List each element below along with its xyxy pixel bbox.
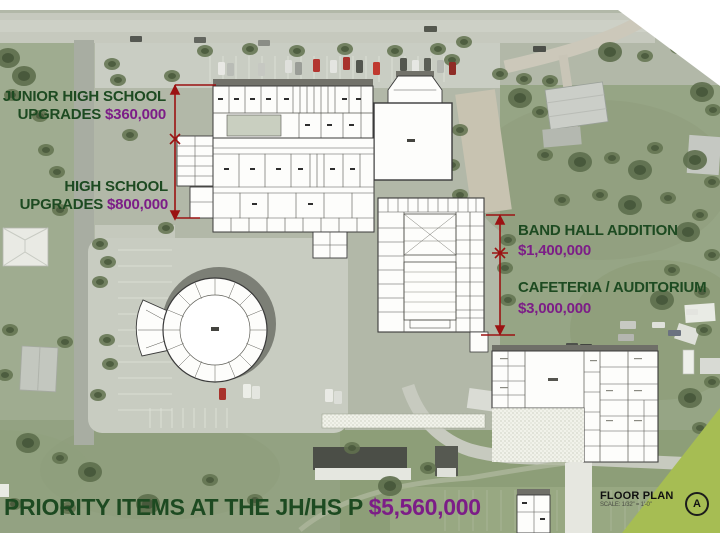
drawing-title: FLOOR PLAN <box>600 490 680 502</box>
label-line: UPGRADES $800,000 <box>0 196 168 214</box>
label-line: BAND HALL ADDITION <box>518 221 678 241</box>
site-plan-graphic <box>0 0 720 540</box>
amount-junior-high: $360,000 <box>105 106 166 123</box>
amount-band-hall: $1,400,000 <box>518 241 678 261</box>
label-cafeteria-auditorium: CAFETERIA / AUDITORIUM $3,000,000 <box>518 277 706 319</box>
label-band-hall: BAND HALL ADDITION $1,400,000 <box>518 221 678 261</box>
label-line: UPGRADES $360,000 <box>0 106 166 124</box>
label-line: HIGH SCHOOL <box>0 178 168 196</box>
amount-high-school: $800,000 <box>107 196 168 213</box>
sheet-letter-marker: A <box>685 492 709 516</box>
label-line: JUNIOR HIGH SCHOOL <box>0 88 166 106</box>
label-high-school-upgrades: HIGH SCHOOL UPGRADES $800,000 <box>0 178 168 214</box>
drawing-title-block: FLOOR PLAN SCALE: 1/32" = 1'-0" <box>600 490 680 509</box>
drawing-scale: SCALE: 1/32" = 1'-0" <box>600 502 680 509</box>
band-cafeteria-plan <box>378 198 488 352</box>
amount-cafeteria: $3,000,000 <box>518 298 706 319</box>
total-amount: $5,560,000 <box>369 494 481 520</box>
slide-title: PRIORITY ITEMS AT THE JH/HS P $5,560,000 <box>4 494 481 521</box>
label-line: CAFETERIA / AUDITORIUM <box>518 277 706 298</box>
presentation-slide: JUNIOR HIGH SCHOOL UPGRADES $360,000 HIG… <box>0 0 720 540</box>
label-junior-high-upgrades: JUNIOR HIGH SCHOOL UPGRADES $360,000 <box>0 88 166 124</box>
